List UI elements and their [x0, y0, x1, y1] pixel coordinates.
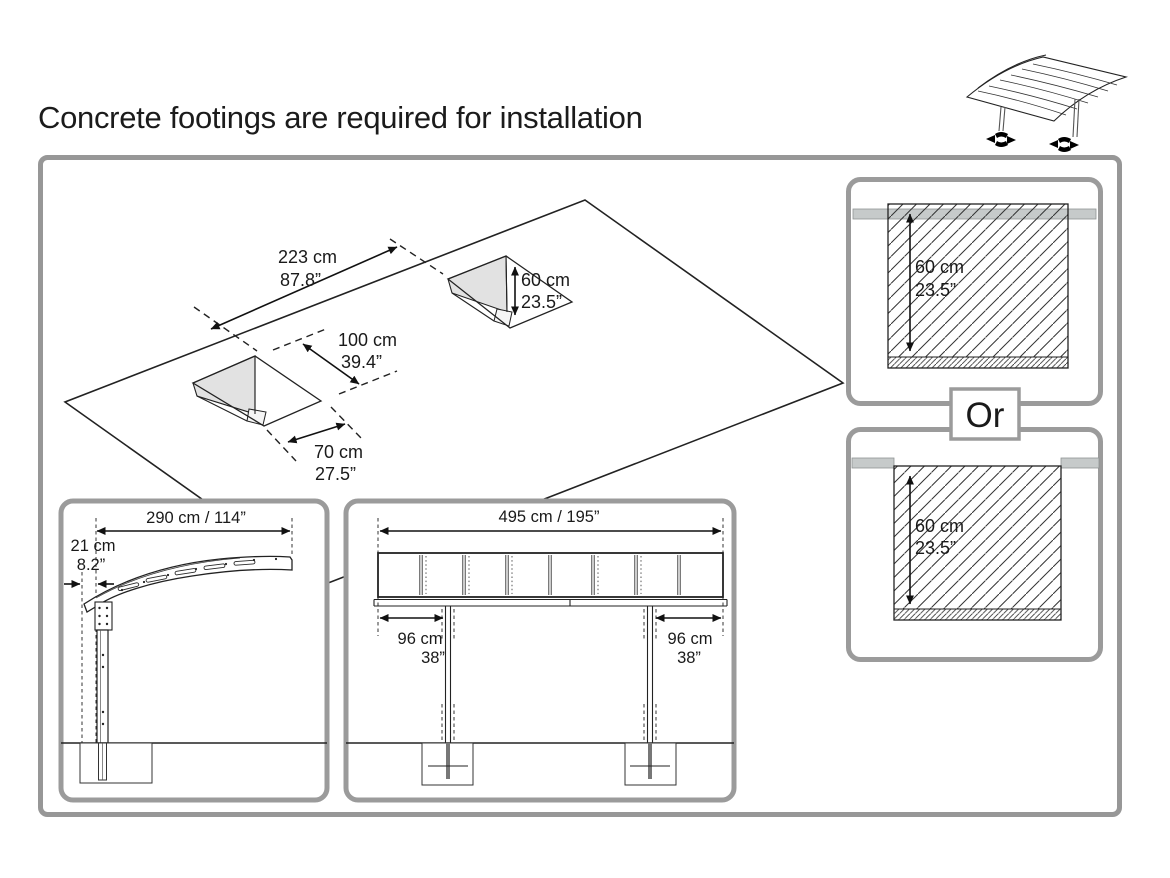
dim-hole-length-cm: 100 cm — [338, 330, 397, 350]
dim-hole-width-inch: 27.5” — [315, 464, 356, 484]
roof-front — [378, 553, 723, 597]
dim-hole-width-cm: 70 cm — [314, 442, 363, 462]
footing-box-front-left — [422, 743, 473, 785]
carport-icon — [967, 55, 1126, 152]
side-view-panel: 290 cm / 114” 21 cm 8.2” — [61, 501, 327, 800]
dim-hole-depth-cm: 60 cm — [521, 270, 570, 290]
cross-bottom-depth-inch: 23.5” — [915, 538, 956, 558]
front-left-offset-cm: 96 cm — [398, 630, 443, 648]
front-view-panel: 495 cm / 195” 96 cm 38” 96 cm 38” — [346, 501, 734, 800]
dim-spacing-cm: 223 cm — [278, 247, 337, 267]
installation-diagram-page: Concrete footings are required for insta… — [0, 0, 1170, 878]
cross-top-depth-inch: 23.5” — [915, 280, 956, 300]
dim-spacing-inch: 87.8” — [280, 270, 321, 290]
cross-bottom-depth-cm: 60 cm — [915, 516, 964, 536]
footing-box-side — [80, 743, 152, 783]
dim-hole-length-inch: 39.4” — [341, 352, 382, 372]
footing-anchor-icon — [986, 132, 1079, 152]
ground-bar-right — [1061, 458, 1099, 468]
dim-hole-depth-inch: 23.5” — [521, 292, 562, 312]
side-overhang-inch: 8.2” — [77, 556, 105, 574]
front-span-label: 495 cm / 195” — [499, 508, 600, 526]
post-side — [97, 630, 108, 743]
front-right-offset-cm: 96 cm — [668, 630, 713, 648]
post-bracket — [95, 602, 112, 630]
side-span-label: 290 cm / 114” — [146, 509, 246, 527]
front-left-offset-inch: 38” — [421, 649, 445, 667]
carport-posts — [999, 99, 1079, 137]
cross-top-depth-cm: 60 cm — [915, 257, 964, 277]
or-box: Or — [951, 389, 1019, 439]
diagram-canvas: 223 cm 87.8” 100 cm 39.4” 70 cm 27.5” — [0, 0, 1170, 878]
or-label: Or — [966, 396, 1005, 435]
front-right-offset-inch: 38” — [677, 649, 701, 667]
footing-box-front-right — [625, 743, 676, 785]
ground-bar-left — [852, 458, 894, 468]
cross-section-bottom-panel: 60 cm 23.5” — [849, 430, 1101, 660]
side-overhang-cm: 21 cm — [71, 537, 116, 555]
cross-section-top-panel: 60 cm 23.5” — [849, 180, 1101, 404]
